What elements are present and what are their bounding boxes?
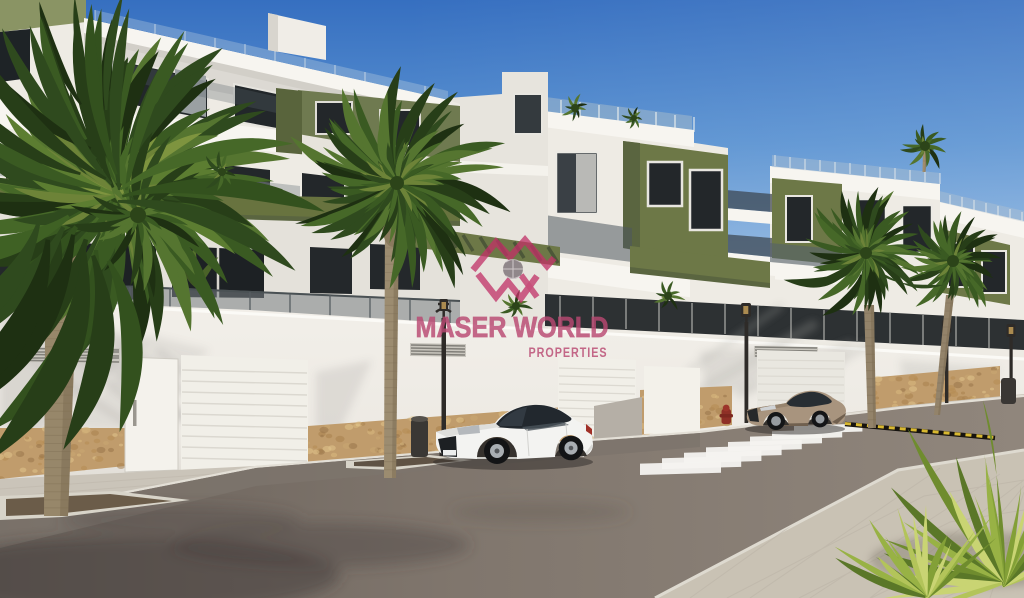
svg-text:PROPERTIES: PROPERTIES bbox=[529, 345, 608, 360]
svg-text:MASER WORLD: MASER WORLD bbox=[416, 312, 609, 344]
